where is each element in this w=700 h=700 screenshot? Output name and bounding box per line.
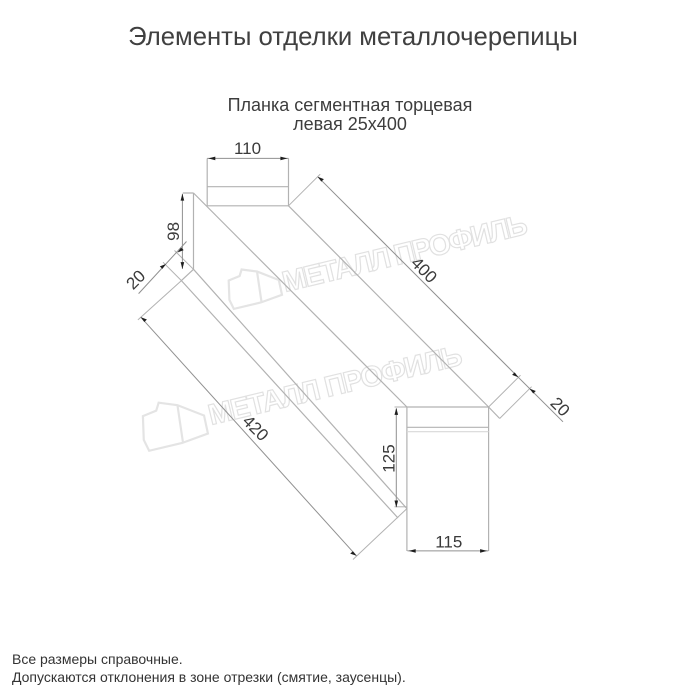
svg-text:левая 25х400: левая 25х400 (293, 114, 407, 134)
svg-text:110: 110 (234, 139, 261, 158)
svg-text:125: 125 (379, 444, 398, 472)
svg-text:115: 115 (435, 533, 462, 552)
svg-text:20: 20 (123, 267, 150, 294)
svg-text:98: 98 (164, 222, 183, 241)
svg-text:Планка сегментная торцевая: Планка сегментная торцевая (228, 95, 473, 115)
svg-text:МЕТАЛЛ ПРОФИЛЬ: МЕТАЛЛ ПРОФИЛЬ (279, 209, 531, 299)
svg-text:20: 20 (547, 394, 574, 421)
svg-text:Элементы отделки металлочерепи: Элементы отделки металлочерепицы (128, 23, 578, 51)
svg-text:Все размеры справочные.: Все размеры справочные. (12, 651, 183, 667)
svg-text:Допускаются отклонения в зоне: Допускаются отклонения в зоне отрезки (с… (12, 669, 406, 685)
